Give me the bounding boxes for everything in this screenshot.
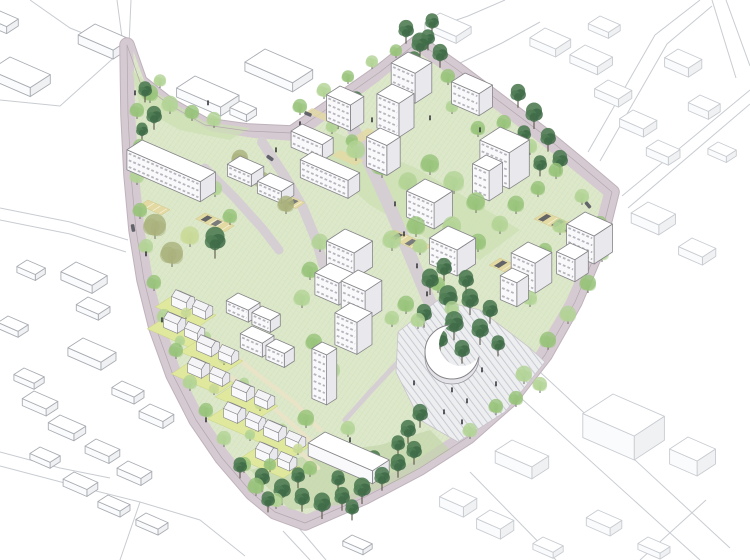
person-figure bbox=[451, 387, 453, 392]
person-figure bbox=[416, 263, 418, 268]
person-figure bbox=[394, 201, 396, 206]
building bbox=[557, 243, 589, 282]
person-figure bbox=[349, 437, 351, 442]
masterplan-illustration bbox=[0, 0, 750, 560]
person-figure bbox=[443, 409, 445, 414]
person-figure bbox=[134, 90, 136, 95]
building bbox=[335, 303, 372, 354]
masterplan-canvas bbox=[0, 0, 750, 560]
person-figure bbox=[207, 100, 209, 105]
crescent-pavilion bbox=[425, 325, 479, 384]
person-figure bbox=[466, 398, 468, 403]
person-figure bbox=[371, 117, 373, 122]
person-figure bbox=[161, 317, 163, 322]
building bbox=[367, 128, 401, 176]
person-figure bbox=[403, 231, 405, 236]
person-figure bbox=[145, 251, 147, 256]
person-figure bbox=[479, 127, 481, 132]
person-figure bbox=[275, 147, 277, 152]
person-figure bbox=[461, 419, 463, 424]
person-figure bbox=[481, 367, 483, 372]
person-figure bbox=[429, 115, 431, 120]
person-figure bbox=[413, 380, 415, 385]
building bbox=[312, 342, 337, 405]
person-figure bbox=[205, 417, 207, 422]
person-figure bbox=[495, 381, 497, 386]
building bbox=[500, 268, 528, 307]
person-figure bbox=[426, 291, 428, 296]
